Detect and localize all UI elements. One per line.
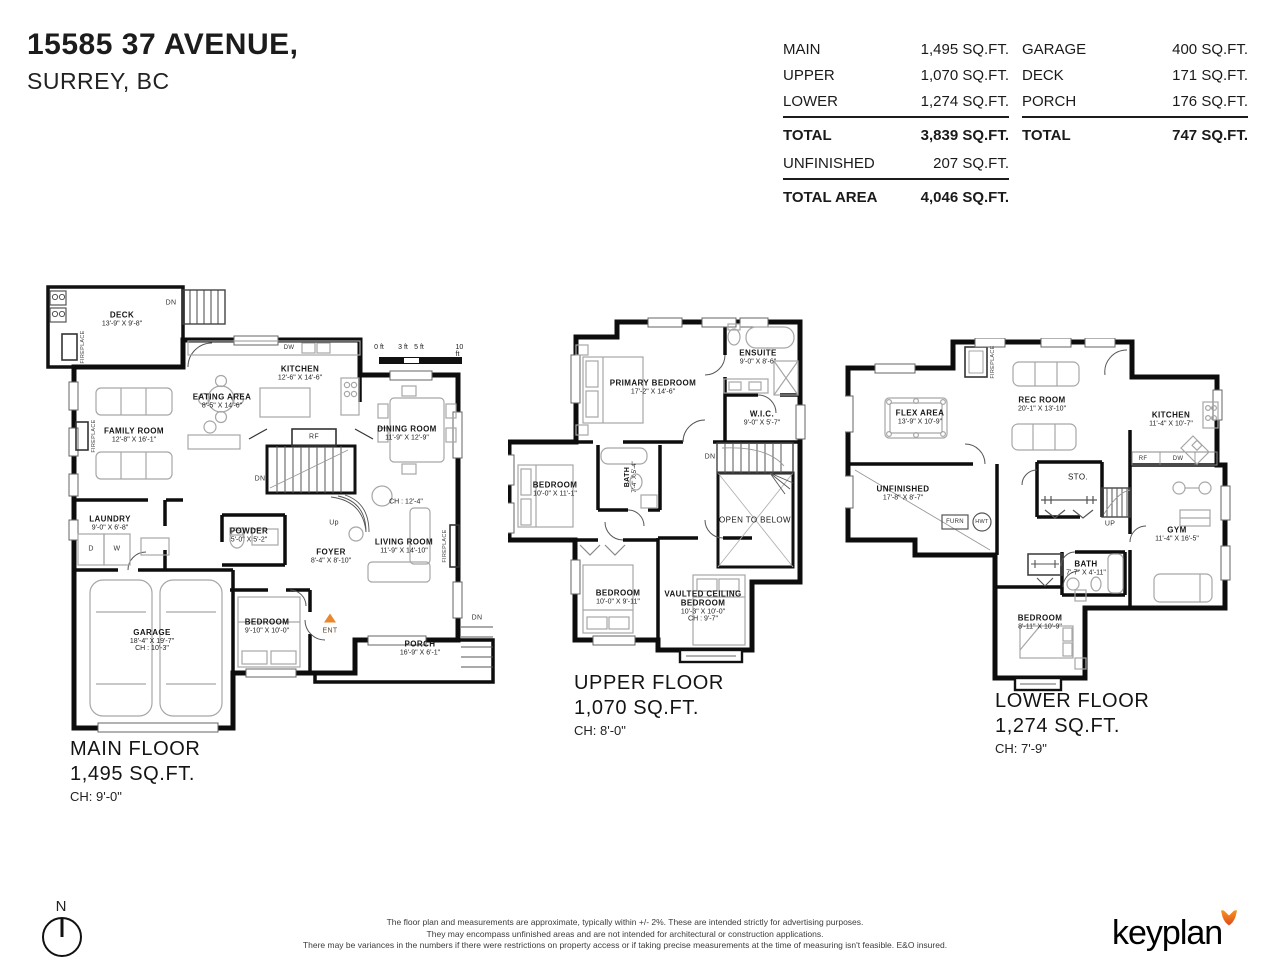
stairs-dn-label: DN bbox=[255, 476, 266, 483]
summary-row-deck: DECK 171 SQ.FT. bbox=[1022, 62, 1248, 88]
address-line1: 15585 37 AVENUE, bbox=[27, 28, 298, 62]
porch-dn-label: DN bbox=[472, 615, 483, 622]
ceiling-note-dining: CH : 12'-4" bbox=[389, 499, 423, 506]
summary-row-lower: LOWER 1,274 SQ.FT. bbox=[783, 88, 1009, 114]
room-label-bedroom-main: BEDROOM 9'-10" X 10'-0" bbox=[245, 618, 290, 635]
room-label-bedroom-lower: BEDROOM 8'-11" X 10'-9" bbox=[1018, 614, 1063, 631]
summary-row-porch: PORCH 176 SQ.FT. bbox=[1022, 88, 1248, 114]
room-label-open-to-below: OPEN TO BELOW bbox=[719, 516, 791, 525]
keyplan-fox-icon bbox=[1220, 910, 1238, 926]
summary-row-upper: UPPER 1,070 SQ.FT. bbox=[783, 62, 1009, 88]
lower-stairs-up-label: UP bbox=[1105, 521, 1115, 528]
room-label-gym: GYM 11'-4" X 16'-5" bbox=[1155, 526, 1199, 543]
room-label-garage: GARAGE 18'-4" X 19'-7" CH : 10'-3" bbox=[130, 628, 174, 652]
keyplan-logo-text: keyplan bbox=[1112, 914, 1222, 952]
fridge-label: RF bbox=[309, 434, 319, 441]
room-label-flex-area: FLEX AREA 13'-9" X 10'-9" bbox=[896, 409, 945, 426]
summary-row-garage: GARAGE 400 SQ.FT. bbox=[1022, 36, 1248, 62]
entrance-label: ENT bbox=[323, 628, 338, 635]
upper-floor-plan: PRIMARY BEDROOM 17'-2" X 14'-6" ENSUITE … bbox=[508, 305, 820, 667]
summary-row-total-right: TOTAL 747 SQ.FT. bbox=[1022, 120, 1248, 150]
main-floor-walls bbox=[38, 282, 508, 742]
keyplan-logo: keyplan bbox=[1112, 914, 1222, 953]
room-label-living-room: LIVING ROOM 11'-9" X 14'-10" bbox=[375, 538, 433, 555]
furnace-label: FURN bbox=[946, 519, 964, 525]
upper-floor-title: UPPER FLOOR 1,070 SQ.FT. CH: 8'-0" bbox=[574, 672, 724, 738]
room-label-deck: DECK 13'-9" X 9'-8" bbox=[102, 311, 142, 328]
deck-stairs-dn-label: DN bbox=[166, 300, 177, 307]
summary-divider bbox=[783, 116, 1009, 118]
room-label-dining-room: DINING ROOM 11'-9" X 12'-9" bbox=[377, 425, 437, 442]
hot-water-tank-label: HWT bbox=[975, 519, 988, 525]
room-label-bedroom3: BEDROOM 10'-0" X 9'-11" bbox=[596, 589, 641, 606]
fireplace-label-family: FIREPLACE bbox=[91, 419, 97, 452]
summary-row-main: MAIN 1,495 SQ.FT. bbox=[783, 36, 1009, 62]
room-label-bedroom2: BEDROOM 10'-0" X 11'-1" bbox=[533, 481, 578, 498]
room-label-eating-area: EATING AREA 8'-5" X 14'-6" bbox=[193, 393, 252, 410]
room-label-kitchen-lower: KITCHEN 11'-4" X 10'-7" bbox=[1149, 411, 1193, 428]
summary-divider2 bbox=[783, 178, 1009, 180]
north-label: N bbox=[42, 898, 80, 915]
room-label-foyer: FOYER 8'-4" X 8'-10" bbox=[311, 548, 351, 565]
fireplace-label-deck: FIREPLACE bbox=[80, 330, 86, 363]
room-label-unfinished: UNFINISHED 17'-8" X 8'-7" bbox=[877, 485, 930, 502]
room-label-bath-upper: BATH 7'-4" X 5'-4" bbox=[624, 461, 638, 492]
area-summary-right: GARAGE 400 SQ.FT. DECK 171 SQ.FT. PORCH … bbox=[1022, 36, 1248, 150]
address-line2: SURREY, BC bbox=[27, 68, 298, 95]
room-label-rec-room: REC ROOM 20'-1" X 13'-10" bbox=[1018, 396, 1066, 413]
summary-row-unfinished: UNFINISHED 207 SQ.FT. bbox=[783, 150, 1009, 176]
disclaimer: The floor plan and measurements are appr… bbox=[165, 917, 1085, 952]
summary-row-total-area: TOTAL AREA 4,046 SQ.FT. bbox=[783, 182, 1009, 212]
room-label-bath-lower: BATH 7'-7" X 4'-11" bbox=[1066, 560, 1106, 577]
washer-label: W bbox=[114, 546, 121, 553]
room-label-laundry: LAUNDRY 9'-0" X 6'-8" bbox=[89, 515, 131, 532]
fireplace-label-rec: FIREPLACE bbox=[990, 345, 996, 378]
page-title: 15585 37 AVENUE, SURREY, BC bbox=[27, 28, 298, 95]
room-label-ensuite: ENSUITE 9'-0" X 8'-6" bbox=[739, 349, 776, 366]
ent-arrow-icon bbox=[324, 614, 336, 623]
room-label-porch: PORCH 16'-9" X 6'-1" bbox=[400, 640, 440, 657]
lower-floor-title: LOWER FLOOR 1,274 SQ.FT. CH: 7'-9" bbox=[995, 690, 1149, 756]
fridge-label-lower: RF bbox=[1139, 456, 1148, 462]
summary-divider3 bbox=[1022, 116, 1248, 118]
main-floor-title: MAIN FLOOR 1,495 SQ.FT. CH: 9'-0" bbox=[70, 738, 200, 804]
dryer-label: D bbox=[88, 546, 93, 553]
room-label-vaulted-bedroom: VAULTED CEILING BEDROOM 10'-3" X 10'-0" … bbox=[664, 590, 741, 623]
room-label-family-room: FAMILY ROOM 12'-8" X 16'-1" bbox=[104, 427, 164, 444]
room-label-kitchen: KITCHEN 12'-6" X 14'-6" bbox=[278, 365, 322, 382]
fireplace-label-living: FIREPLACE bbox=[442, 529, 448, 562]
upper-stairs-dn-label: DN bbox=[705, 454, 716, 461]
room-label-wic: W.I.C. 9'-0" X 5'-7" bbox=[744, 410, 780, 427]
area-summary-left: MAIN 1,495 SQ.FT. UPPER 1,070 SQ.FT. LOW… bbox=[783, 36, 1009, 212]
dishwasher-label-lower: DW bbox=[1173, 456, 1184, 462]
main-floor-plan: DECK 13'-9" X 9'-8" KITCHEN 12'-6" X 14'… bbox=[38, 282, 508, 742]
dishwasher-label: DW bbox=[284, 345, 295, 351]
stairs-up-label: Up bbox=[329, 520, 339, 527]
north-compass-icon: N bbox=[42, 898, 82, 957]
room-label-storage: STO. bbox=[1068, 473, 1088, 482]
summary-row-total: TOTAL 3,839 SQ.FT. bbox=[783, 120, 1009, 150]
room-label-primary-bedroom: PRIMARY BEDROOM 17'-2" X 14'-6" bbox=[610, 379, 696, 396]
room-label-powder: POWDER 5'-0" X 5'-2" bbox=[230, 527, 268, 544]
